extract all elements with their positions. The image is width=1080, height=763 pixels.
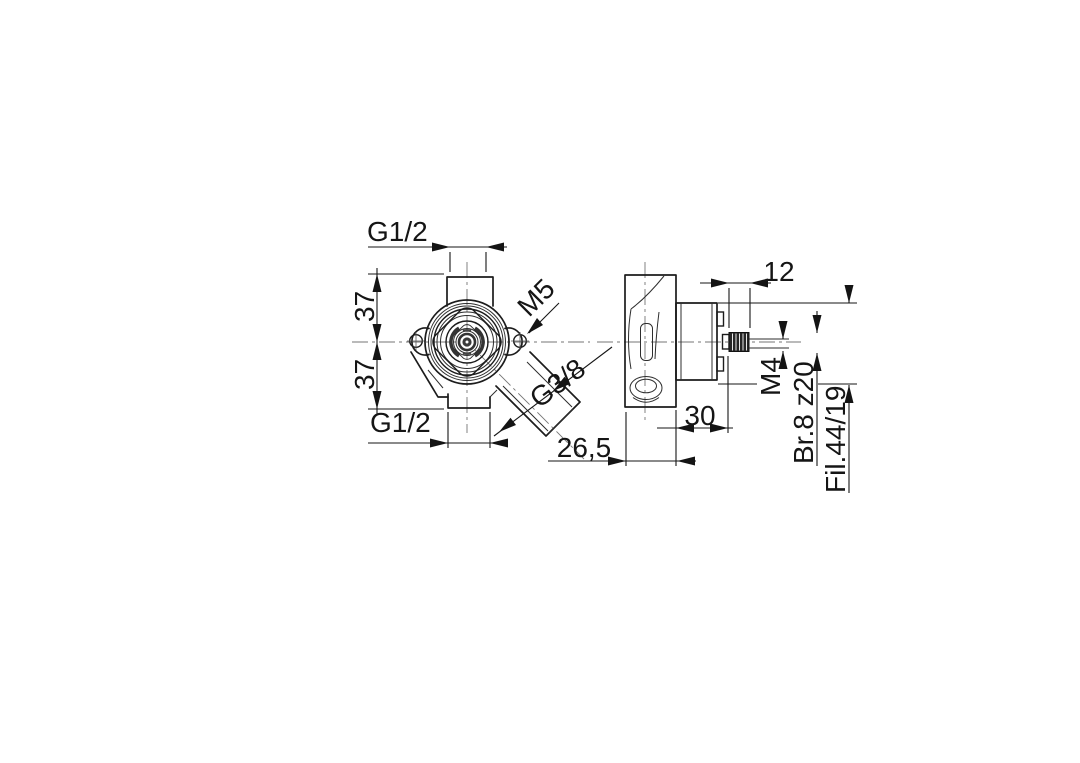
dim-spline-spec: Br.8 z20 (788, 311, 822, 466)
body-depth-label: 26,5 (557, 432, 612, 463)
technical-drawing: G1/2 37 37 G1/2 M5 (0, 0, 1080, 763)
front-view: G1/2 37 37 G1/2 M5 (349, 216, 612, 459)
screw-thread-label: M5 (511, 273, 560, 322)
spindle-thread-label: M4 (755, 357, 786, 396)
dim-thread-bottom: G1/2 (368, 407, 508, 448)
drawing-canvas: G1/2 37 37 G1/2 M5 (0, 0, 1080, 763)
thread-top-label: G1/2 (367, 216, 428, 247)
cartridge-depth-label: 30 (684, 400, 715, 431)
dim-body-depth: 26,5 (548, 410, 696, 466)
dim-cartridge-depth: 30 (657, 356, 733, 433)
thread-bottom-label: G1/2 (370, 407, 431, 438)
dim-screw-thread: M5 (511, 273, 560, 334)
offset-upper-label: 37 (349, 291, 380, 322)
spindle-length-label: 12 (763, 256, 794, 287)
dim-offsets: 37 37 (349, 268, 444, 414)
side-cartridge (676, 303, 729, 380)
dim-thread-top: G1/2 (367, 216, 507, 272)
dim-thread-outlet: G3/8 (494, 347, 612, 436)
dim-spindle-thread: M4 (755, 321, 788, 396)
series-spec-label: Fil.44/19 (820, 386, 851, 493)
front-bottom-pipe (448, 394, 490, 408)
side-view: 12 30 26,5 M4 Br.8 z20 (548, 256, 857, 493)
offset-lower-label: 37 (349, 359, 380, 390)
dim-spindle-length: 12 (700, 256, 795, 328)
side-body (625, 275, 676, 407)
spline-spec-label: Br.8 z20 (788, 361, 819, 464)
thread-outlet-label: G3/8 (524, 353, 591, 414)
